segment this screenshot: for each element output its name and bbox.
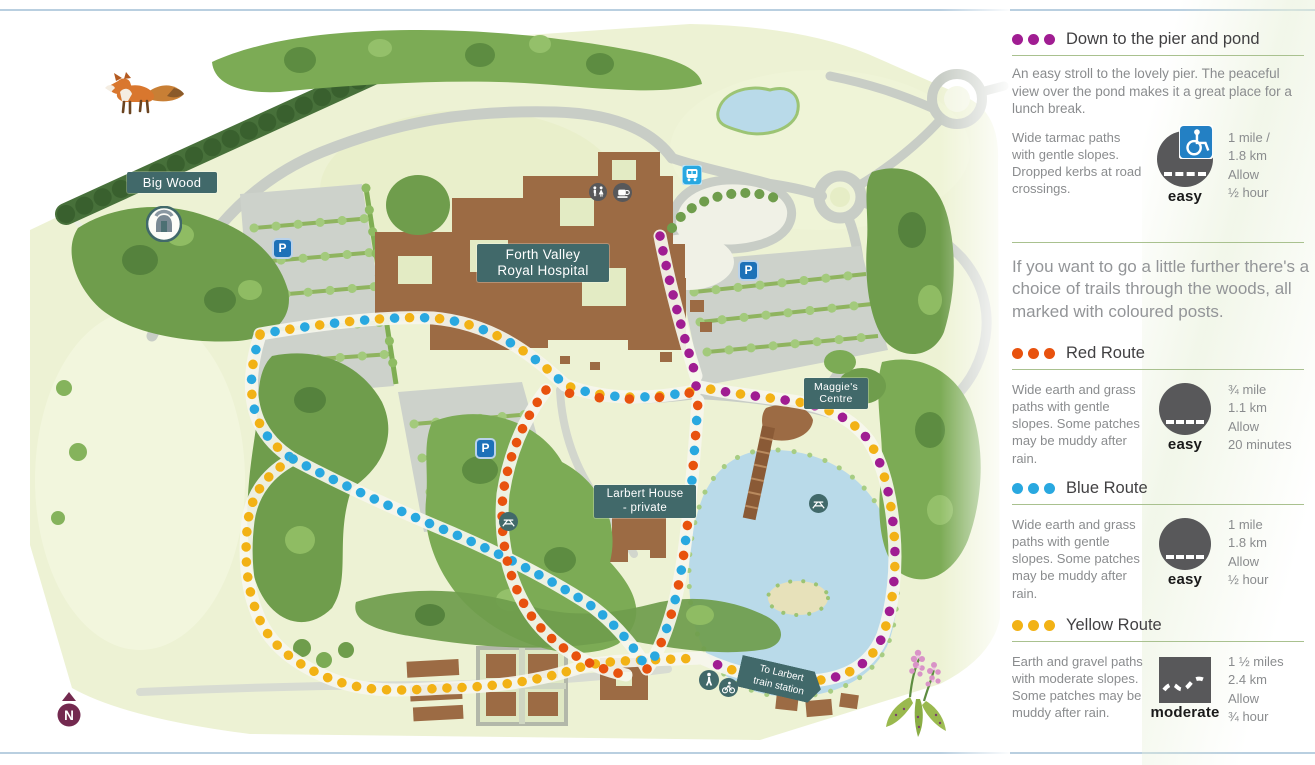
compass-n-letter: N bbox=[64, 708, 74, 723]
parking-icon: P bbox=[274, 240, 291, 257]
stat-time: ½ hour bbox=[1228, 571, 1304, 589]
hospital-label: Forth Valley Royal Hospital bbox=[477, 244, 609, 282]
difficulty-label: easy bbox=[1144, 188, 1226, 205]
route-title: Down to the pier and pond bbox=[1066, 30, 1260, 49]
road-dashes bbox=[1166, 555, 1204, 559]
stat-time: ¾ hour bbox=[1228, 708, 1304, 726]
cafe-icon bbox=[613, 183, 632, 207]
parking-letter: P bbox=[481, 441, 489, 455]
route-color-dot bbox=[1012, 348, 1023, 359]
compass-north-icon: N bbox=[55, 692, 83, 733]
difficulty-label: moderate bbox=[1144, 704, 1226, 721]
section-header: Yellow Route bbox=[1012, 616, 1304, 642]
route-color-dot bbox=[1012, 34, 1023, 45]
route-surface-text: Wide earth and grass paths with gentle s… bbox=[1012, 381, 1144, 467]
route-stats: ¾ mile 1.1 km Allow 20 minutes bbox=[1226, 381, 1304, 467]
larbert-label-line2: - private bbox=[599, 502, 691, 516]
stat-allow: Allow bbox=[1228, 553, 1304, 571]
hospital-grounds-map: Big Wood Forth Valley Royal Hospital Mag… bbox=[0, 0, 1010, 765]
big-wood-label: Big Wood bbox=[127, 172, 217, 193]
route-title: Blue Route bbox=[1066, 479, 1148, 498]
pond-island bbox=[768, 581, 828, 615]
stat-distance-miles: ¾ mile bbox=[1228, 381, 1304, 399]
difficulty-badge: moderate bbox=[1144, 653, 1226, 727]
hospital-label-line1: Forth Valley bbox=[482, 247, 604, 263]
section-header: Red Route bbox=[1012, 344, 1304, 370]
route-surface-text: Wide earth and grass paths with gentle s… bbox=[1012, 516, 1144, 602]
route-title: Yellow Route bbox=[1066, 616, 1162, 635]
route-section-yellow: Yellow Route Earth and gravel paths with… bbox=[1012, 616, 1304, 727]
route-color-dot bbox=[1028, 348, 1039, 359]
hospital-label-line2: Royal Hospital bbox=[482, 263, 604, 279]
route-surface-text: Earth and gravel paths with moderate slo… bbox=[1012, 653, 1144, 727]
bus-stop-icon bbox=[682, 165, 702, 190]
courtyard-trees bbox=[386, 175, 450, 235]
difficulty-label: easy bbox=[1144, 571, 1226, 588]
leaflet-page: Big Wood Forth Valley Royal Hospital Mag… bbox=[0, 0, 1315, 765]
larbert-house-label: Larbert House - private bbox=[594, 485, 696, 518]
route-color-dot bbox=[1044, 348, 1055, 359]
stat-distance-miles: 1 mile bbox=[1228, 516, 1304, 534]
difficulty-badge: easy bbox=[1144, 381, 1226, 467]
section-header: Down to the pier and pond bbox=[1012, 30, 1304, 56]
route-color-dot bbox=[1012, 483, 1023, 494]
road-dashes bbox=[1164, 172, 1206, 176]
route-section-blue: Blue Route Wide earth and grass paths wi… bbox=[1012, 479, 1304, 602]
section-divider bbox=[1012, 242, 1304, 243]
easy-badge-circle bbox=[1159, 518, 1211, 570]
wavy-road-dashes bbox=[1159, 657, 1211, 703]
parking-icon: P bbox=[477, 440, 494, 457]
stat-distance-km: 1.1 km bbox=[1228, 399, 1304, 417]
stat-distance-miles: 1 mile / bbox=[1228, 129, 1304, 147]
stat-time: ½ hour bbox=[1228, 184, 1304, 202]
toilets-icon bbox=[589, 183, 607, 206]
big-wood-text: Big Wood bbox=[143, 175, 202, 190]
stat-distance-km: 2.4 km bbox=[1228, 671, 1304, 689]
route-color-dot bbox=[1044, 620, 1055, 631]
route-description: An easy stroll to the lovely pier. The p… bbox=[1012, 65, 1292, 118]
larbert-label-line1: Larbert House bbox=[599, 488, 691, 502]
parking-letter: P bbox=[278, 241, 286, 255]
route-title: Red Route bbox=[1066, 344, 1145, 363]
route-stats: 1 mile 1.8 km Allow ½ hour bbox=[1226, 516, 1304, 602]
roman-fort-icon bbox=[146, 206, 182, 247]
route-stats: 1 ½ miles 2.4 km Allow ¾ hour bbox=[1226, 653, 1304, 727]
stat-distance-km: 1.8 km bbox=[1228, 534, 1304, 552]
stat-distance-miles: 1 ½ miles bbox=[1228, 653, 1304, 671]
stat-allow: Allow bbox=[1228, 690, 1304, 708]
maggies-label-line2: Centre bbox=[809, 393, 863, 405]
route-color-dot bbox=[1012, 620, 1023, 631]
maggies-centre-label: Maggie's Centre bbox=[804, 378, 868, 409]
route-color-dot bbox=[1044, 483, 1055, 494]
route-legend-panel: Down to the pier and pond An easy stroll… bbox=[1012, 0, 1304, 765]
route-stats: 1 mile / 1.8 km Allow ½ hour bbox=[1226, 129, 1304, 205]
road-dashes bbox=[1166, 420, 1204, 424]
difficulty-badge: easy bbox=[1144, 516, 1226, 602]
picnic-area-icon bbox=[809, 494, 828, 518]
section-header: Blue Route bbox=[1012, 479, 1304, 505]
route-section-red: Red Route Wide earth and grass paths wit… bbox=[1012, 344, 1304, 467]
map-edge-fade bbox=[940, 0, 1010, 765]
moderate-badge-square bbox=[1159, 657, 1211, 703]
trails-intro-text: If you want to go a little further there… bbox=[1012, 256, 1312, 323]
cyclist-icon bbox=[719, 678, 738, 702]
small-pond bbox=[718, 88, 799, 134]
picnic-area-icon bbox=[499, 512, 518, 536]
walker-icon bbox=[699, 670, 719, 695]
wheelchair-access-icon bbox=[1179, 125, 1213, 164]
difficulty-label: easy bbox=[1144, 436, 1226, 453]
route-surface-text: Wide tarmac paths with gentle slopes. Dr… bbox=[1012, 129, 1144, 205]
route-color-dot bbox=[1028, 620, 1039, 631]
route-color-dot bbox=[1044, 34, 1055, 45]
maggies-label-line1: Maggie's bbox=[809, 381, 863, 393]
route-color-dot bbox=[1028, 34, 1039, 45]
stat-allow: Allow bbox=[1228, 418, 1304, 436]
difficulty-badge: easy bbox=[1144, 129, 1226, 205]
parking-icon: P bbox=[740, 262, 757, 279]
roundabout-island bbox=[830, 187, 850, 207]
stat-time: 20 minutes bbox=[1228, 436, 1304, 454]
route-color-dot bbox=[1028, 483, 1039, 494]
route-section-pier: Down to the pier and pond An easy stroll… bbox=[1012, 30, 1304, 205]
easy-badge-circle bbox=[1159, 383, 1211, 435]
easy-badge-circle bbox=[1157, 131, 1213, 187]
parking-letter: P bbox=[744, 263, 752, 277]
fox-illustration bbox=[105, 72, 184, 113]
stat-distance-km: 1.8 km bbox=[1228, 147, 1304, 165]
stat-allow: Allow bbox=[1228, 166, 1304, 184]
